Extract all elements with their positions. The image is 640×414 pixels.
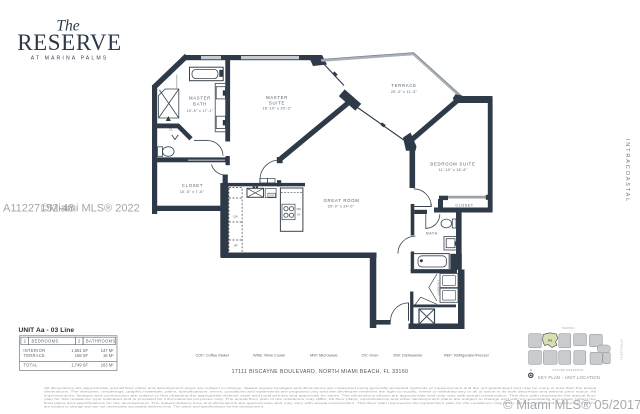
svg-text:TERRACE: TERRACE [391,83,416,88]
svg-text:REF: Refrigerator/Freezer: REF: Refrigerator/Freezer [444,352,490,357]
svg-text:1,749 SF: 1,749 SF [71,363,88,368]
svg-text:WNE: Wine Cooler: WNE: Wine Cooler [253,352,286,357]
svg-text:10'-5" x 17'-1": 10'-5" x 17'-1" [187,109,214,113]
svg-text:OV: Oven: OV: Oven [362,352,379,357]
svg-text:AT MARINA PALMS: AT MARINA PALMS [31,56,109,62]
svg-text:CLOSET: CLOSET [182,183,203,188]
svg-text:GREAT ROOM: GREAT ROOM [324,198,360,203]
svg-text:RF: RF [234,244,238,248]
svg-text:TOTAL: TOTAL [23,363,38,368]
svg-text:BATHROOMS: BATHROOMS [86,339,116,344]
svg-text:INTRACOASTAL: INTRACOASTAL [620,339,623,360]
svg-text:KEY PLAN - UNIT LOCATION: KEY PLAN - UNIT LOCATION [538,375,600,380]
svg-text:BATH: BATH [426,232,438,236]
svg-text:©Miami MLS® 2022: ©Miami MLS® 2022 [41,203,140,215]
svg-text:UNIT Aa - 03 Line: UNIT Aa - 03 Line [19,327,75,334]
svg-text:16 M²: 16 M² [103,353,114,358]
svg-text:OV: OV [297,214,301,217]
svg-text:BEDROOM SUITE: BEDROOM SUITE [430,162,475,167]
svg-text:MASTER: MASTER [189,95,211,100]
svg-text:DW: Dishwasher: DW: Dishwasher [394,352,424,357]
svg-text:MASTER: MASTER [266,95,288,100]
svg-text:17111 BISCAYNE BOULEVARD, NORT: 17111 BISCAYNE BOULEVARD, NORTH MIAMI BE… [232,369,409,375]
svg-text:NATURE PRESERVE: NATURE PRESERVE [552,368,583,372]
svg-text:20'-0" x 24'-0": 20'-0" x 24'-0" [328,205,355,209]
svg-text:SUITE: SUITE [269,100,285,105]
svg-text:TERRACE: TERRACE [23,353,45,358]
svg-text:CW: CW [233,215,238,219]
svg-text:20'-4" x 11'-0": 20'-4" x 11'-0" [391,90,418,94]
svg-text:CLOSET: CLOSET [455,203,473,207]
svg-text:CL: CL [169,128,173,132]
svg-text:INTRACOASTAL: INTRACOASTAL [624,139,630,203]
svg-text:N: N [530,368,532,372]
svg-text:Aa: Aa [548,339,552,343]
svg-text:11'-10" x 16'-8": 11'-10" x 16'-8" [439,168,468,172]
svg-text:MARINA: MARINA [562,326,575,330]
svg-text:MW: Microwave: MW: Microwave [310,352,338,357]
svg-text:10'-5" x 7'-6": 10'-5" x 7'-6" [180,190,205,194]
svg-text:163 M²: 163 M² [101,363,114,368]
svg-text:16'-10" x 20'-3": 16'-10" x 20'-3" [263,106,292,110]
svg-text:© Miami MLS® 05/2017: © Miami MLS® 05/2017 [503,397,640,412]
svg-text:are subject to change and are: are subject to change and are not necess… [44,405,264,409]
svg-text:COF: Coffee Maker: COF: Coffee Maker [196,352,230,357]
svg-text:BATH: BATH [193,102,207,107]
svg-text:168 SF: 168 SF [75,353,89,358]
svg-text:MW: MW [297,208,302,211]
svg-text:BEDROOMS: BEDROOMS [32,339,59,344]
svg-text:RESERVE: RESERVE [17,30,122,55]
